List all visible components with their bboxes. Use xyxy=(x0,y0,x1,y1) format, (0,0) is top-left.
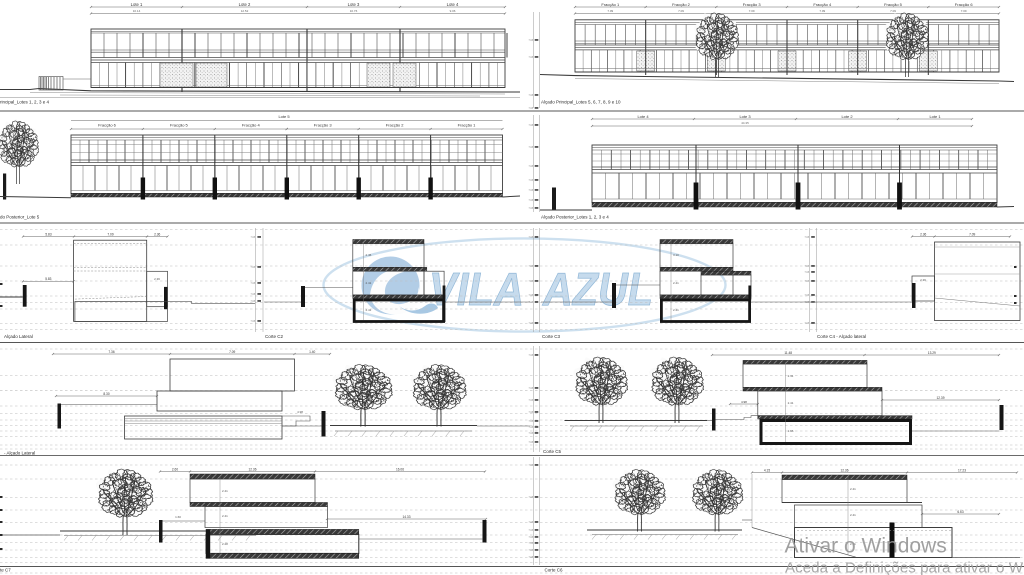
svg-text:7.09: 7.09 xyxy=(107,232,113,236)
svg-text:Fracção 1: Fracção 1 xyxy=(601,2,620,7)
svg-text:Lote 4: Lote 4 xyxy=(447,2,459,7)
svg-text:Alçado Posterior_Lotes 1, 2, 3: Alçado Posterior_Lotes 1, 2, 3 e 4 xyxy=(541,215,609,220)
svg-text:7.08: 7.08 xyxy=(529,465,534,467)
svg-text:7.09: 7.09 xyxy=(969,232,975,236)
svg-text:7.08: 7.08 xyxy=(251,283,256,285)
svg-text:2.41: 2.41 xyxy=(788,374,794,378)
svg-text:7.08: 7.08 xyxy=(529,388,534,390)
svg-text:Corte C2: Corte C2 xyxy=(265,334,284,339)
svg-text:13.29: 13.29 xyxy=(928,351,936,355)
svg-text:7.08: 7.08 xyxy=(251,237,256,239)
svg-text:7.08: 7.08 xyxy=(529,323,534,325)
svg-text:7.08: 7.08 xyxy=(529,427,534,429)
svg-text:7.08: 7.08 xyxy=(805,272,810,274)
svg-text:16.06: 16.06 xyxy=(396,467,404,471)
svg-text:7.08: 7.08 xyxy=(529,180,534,182)
svg-text:1.60: 1.60 xyxy=(175,515,181,519)
svg-text:7.08: 7.08 xyxy=(529,147,534,149)
svg-text:7.08: 7.08 xyxy=(529,543,534,545)
svg-text:7.08: 7.08 xyxy=(529,266,534,268)
svg-text:Lote 4: Lote 4 xyxy=(637,114,649,119)
svg-text:8.30: 8.30 xyxy=(103,392,109,396)
svg-text:7.08: 7.08 xyxy=(251,267,256,269)
svg-text:7.08: 7.08 xyxy=(529,530,534,532)
svg-text:4.98: 4.98 xyxy=(741,400,747,404)
svg-text:7.36: 7.36 xyxy=(108,350,114,354)
svg-text:2.41: 2.41 xyxy=(366,281,372,285)
svg-text:7.08: 7.08 xyxy=(529,108,534,110)
svg-text:Ativar o Windows: Ativar o Windows xyxy=(785,534,947,557)
svg-text:Fracção 2: Fracção 2 xyxy=(672,2,691,7)
svg-text:7.08: 7.08 xyxy=(529,208,534,210)
svg-text:7.08: 7.08 xyxy=(529,281,534,283)
svg-text:te C7: te C7 xyxy=(0,568,11,573)
svg-text:44.35: 44.35 xyxy=(741,121,749,125)
svg-text:7.08: 7.08 xyxy=(529,57,534,59)
svg-text:10.76: 10.76 xyxy=(350,9,358,13)
svg-text:2.46: 2.46 xyxy=(366,253,372,257)
svg-text:9.06: 9.06 xyxy=(450,9,456,13)
svg-text:- Alçado Lateral: - Alçado Lateral xyxy=(4,450,35,455)
svg-text:4.98: 4.98 xyxy=(297,410,303,414)
svg-text:7.08: 7.08 xyxy=(251,301,256,303)
svg-text:2.36: 2.36 xyxy=(920,232,926,236)
svg-text:2.41: 2.41 xyxy=(673,308,679,312)
svg-text:7.08: 7.08 xyxy=(529,433,534,435)
svg-text:7.09: 7.09 xyxy=(890,9,896,13)
svg-text:Fracção 1: Fracção 1 xyxy=(458,123,477,128)
svg-text:AZUL: AZUL xyxy=(542,263,653,315)
svg-text:7.08: 7.08 xyxy=(529,557,534,559)
svg-text:Fracção 3: Fracção 3 xyxy=(314,123,333,128)
svg-text:17.23: 17.23 xyxy=(958,468,966,472)
svg-text:7.08: 7.08 xyxy=(529,190,534,192)
svg-text:Lote 1: Lote 1 xyxy=(929,114,941,119)
svg-text:7.08: 7.08 xyxy=(529,166,534,168)
svg-text:7.08: 7.08 xyxy=(529,550,534,552)
svg-text:7.08: 7.08 xyxy=(529,40,534,42)
svg-text:Alçado Principal_Lotes 5, 6, 7: Alçado Principal_Lotes 5, 6, 7, 8, 9 e 1… xyxy=(541,100,621,105)
svg-text:7.08: 7.08 xyxy=(805,237,810,239)
svg-text:7.08: 7.08 xyxy=(251,294,256,296)
svg-text:7.08: 7.08 xyxy=(805,281,810,283)
svg-text:2.41: 2.41 xyxy=(850,513,856,517)
svg-text:12.36: 12.36 xyxy=(841,468,849,472)
svg-text:6.63: 6.63 xyxy=(957,510,963,514)
svg-text:3.10: 3.10 xyxy=(673,253,679,257)
svg-text:11.48: 11.48 xyxy=(784,351,792,355)
svg-text:Fracção 2: Fracção 2 xyxy=(386,123,405,128)
svg-text:Fracção 6: Fracção 6 xyxy=(98,123,117,128)
svg-text:12.36: 12.36 xyxy=(249,467,257,471)
svg-text:7.08: 7.08 xyxy=(529,295,534,297)
svg-text:1.40: 1.40 xyxy=(309,350,315,354)
svg-text:7.08: 7.08 xyxy=(529,497,534,499)
svg-text:7.08: 7.08 xyxy=(529,302,534,304)
svg-text:2.41: 2.41 xyxy=(850,487,856,491)
svg-text:2.41: 2.41 xyxy=(222,489,228,493)
svg-text:2.41: 2.41 xyxy=(222,514,228,518)
svg-text:7.08: 7.08 xyxy=(529,355,534,357)
svg-text:14.33: 14.33 xyxy=(403,515,411,519)
svg-text:2.28: 2.28 xyxy=(222,542,228,546)
svg-text:Corte C4 - Alçado lateral: Corte C4 - Alçado lateral xyxy=(817,334,866,339)
svg-text:2.41: 2.41 xyxy=(366,308,372,312)
svg-text:Lote 2: Lote 2 xyxy=(239,2,251,7)
svg-text:Fracção 3: Fracção 3 xyxy=(743,2,762,7)
svg-text:2.41: 2.41 xyxy=(788,401,794,405)
svg-text:Fracção 5: Fracção 5 xyxy=(884,2,903,7)
svg-text:Corte C5: Corte C5 xyxy=(543,449,562,454)
svg-text:Lote 1: Lote 1 xyxy=(131,2,143,7)
svg-text:2.96: 2.96 xyxy=(788,429,794,433)
svg-text:7.08: 7.08 xyxy=(529,237,534,239)
svg-text:Aceda a Definições para ativar: Aceda a Definições para ativar o W xyxy=(785,560,1024,575)
svg-text:7.08: 7.08 xyxy=(529,125,534,127)
svg-text:2.36: 2.36 xyxy=(154,232,160,236)
svg-text:5.83: 5.83 xyxy=(45,277,51,281)
svg-text:7.08: 7.08 xyxy=(529,95,534,97)
svg-text:12.52: 12.52 xyxy=(241,9,249,13)
svg-text:Fracção 4: Fracção 4 xyxy=(813,2,832,7)
svg-text:7.08: 7.08 xyxy=(251,321,256,323)
svg-text:7.09: 7.09 xyxy=(749,9,755,13)
svg-text:Fracção 5: Fracção 5 xyxy=(170,123,189,128)
svg-text:Fracção 4: Fracção 4 xyxy=(242,123,261,128)
svg-text:7.09: 7.09 xyxy=(961,9,967,13)
svg-text:7.08: 7.08 xyxy=(529,442,534,444)
svg-text:2.36: 2.36 xyxy=(920,278,926,282)
svg-text:7.08: 7.08 xyxy=(529,400,534,402)
svg-text:7.08: 7.08 xyxy=(529,200,534,202)
svg-text:7.08: 7.08 xyxy=(529,412,534,414)
svg-text:7.08: 7.08 xyxy=(529,421,534,423)
svg-text:Lote 2: Lote 2 xyxy=(841,114,853,119)
svg-text:7.09: 7.09 xyxy=(678,9,684,13)
svg-text:Corte C6: Corte C6 xyxy=(545,568,564,573)
svg-text:Fracção 6: Fracção 6 xyxy=(955,2,974,7)
svg-text:7.08: 7.08 xyxy=(529,522,534,524)
svg-text:rincipal_Lotes 1, 2, 3 e 4: rincipal_Lotes 1, 2, 3 e 4 xyxy=(0,100,50,105)
svg-text:Alçado Lateral: Alçado Lateral xyxy=(4,334,33,339)
svg-text:2.36: 2.36 xyxy=(154,277,160,281)
svg-text:do Posterior_Lote 5: do Posterior_Lote 5 xyxy=(0,215,40,220)
svg-text:Lote 3: Lote 3 xyxy=(739,114,751,119)
svg-text:7.09: 7.09 xyxy=(607,9,613,13)
svg-text:7.08: 7.08 xyxy=(805,323,810,325)
svg-text:2.41: 2.41 xyxy=(673,281,679,285)
svg-text:7.09: 7.09 xyxy=(819,9,825,13)
svg-text:Corte C3: Corte C3 xyxy=(542,334,561,339)
svg-text:2.60: 2.60 xyxy=(172,467,178,471)
svg-text:4.15: 4.15 xyxy=(764,468,770,472)
svg-text:Lote 3: Lote 3 xyxy=(348,2,360,7)
svg-text:5.83: 5.83 xyxy=(45,232,51,236)
svg-text:12.39: 12.39 xyxy=(937,396,945,400)
svg-text:10.14: 10.14 xyxy=(133,9,141,13)
svg-text:7.08: 7.08 xyxy=(805,266,810,268)
svg-text:Lote 5: Lote 5 xyxy=(278,114,290,119)
svg-text:7.08: 7.08 xyxy=(529,537,534,539)
svg-text:7.09: 7.09 xyxy=(229,350,235,354)
svg-text:7.08: 7.08 xyxy=(805,295,810,297)
